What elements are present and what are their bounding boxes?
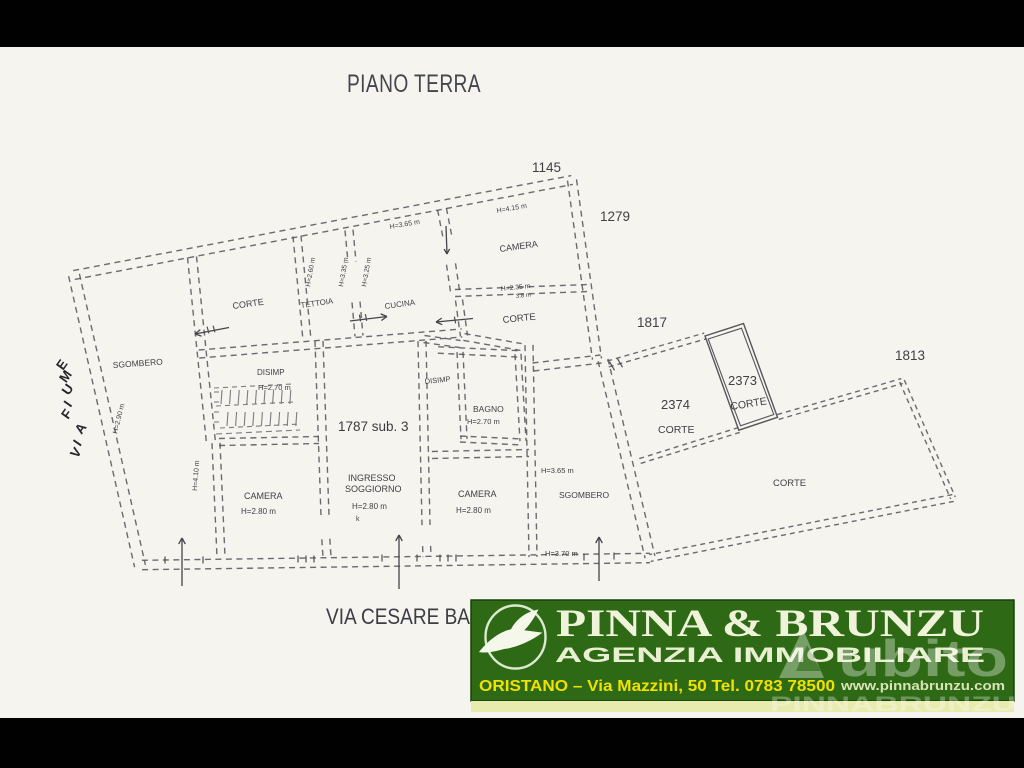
svg-text:2374: 2374: [661, 397, 690, 412]
svg-text:ubito: ubito: [838, 630, 1008, 688]
svg-text:1279: 1279: [600, 209, 630, 224]
svg-text:BAGNO: BAGNO: [473, 404, 504, 414]
svg-text:H=2.80 m: H=2.80 m: [241, 507, 276, 516]
svg-text:1787 sub. 3: 1787 sub. 3: [338, 419, 409, 434]
svg-text:H=2.80 m: H=2.80 m: [456, 506, 491, 515]
svg-text:1813: 1813: [895, 348, 925, 363]
svg-text:2373: 2373: [728, 373, 757, 388]
svg-text:k: k: [356, 516, 360, 523]
svg-text:H=3.70 m: H=3.70 m: [545, 549, 578, 558]
svg-text:DISIMP: DISIMP: [257, 368, 285, 377]
svg-text:CORTE: CORTE: [658, 424, 695, 436]
svg-text:H=2.70 m: H=2.70 m: [467, 417, 500, 426]
svg-text:CAMERA: CAMERA: [244, 491, 283, 501]
svg-text:PINNABRUNZU: PINNABRUNZU: [770, 693, 1016, 716]
svg-text:SOGGIORNO: SOGGIORNO: [345, 484, 402, 494]
svg-text:CORTE: CORTE: [773, 478, 806, 489]
svg-text:CAMERA: CAMERA: [458, 489, 497, 499]
svg-text:PIANO TERRA: PIANO TERRA: [347, 70, 481, 98]
svg-text:INGRESSO: INGRESSO: [348, 473, 396, 483]
svg-text:VIA CESARE BA: VIA CESARE BA: [326, 604, 470, 629]
svg-text:H=2.70 m: H=2.70 m: [258, 383, 291, 392]
svg-text:1145: 1145: [532, 160, 561, 175]
svg-text:SGOMBERO: SGOMBERO: [559, 490, 609, 500]
svg-text:1817: 1817: [637, 315, 667, 330]
svg-text:H=2.80 m: H=2.80 m: [352, 502, 387, 511]
svg-text:H=3.65 m: H=3.65 m: [541, 466, 574, 475]
